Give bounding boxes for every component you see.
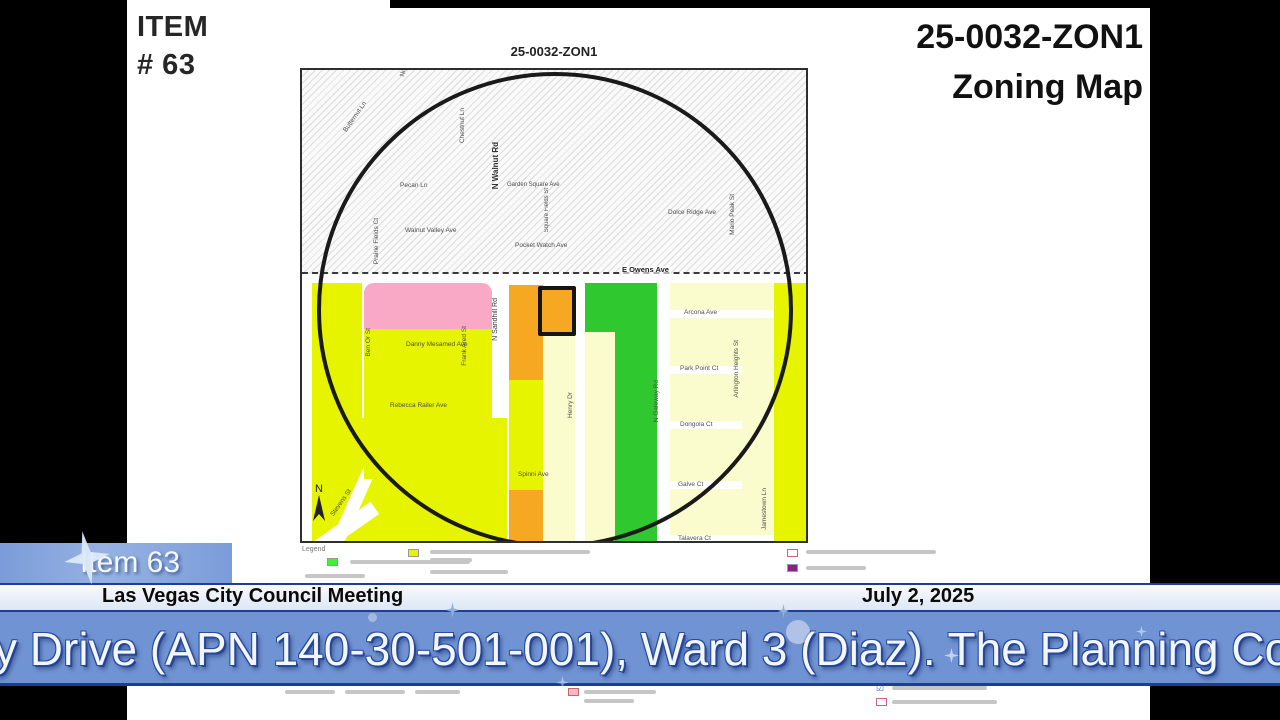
case-number: 25-0032-ZON1: [916, 12, 1143, 62]
broadcast-frame: { "header": { "item_line1": "ITEM", "ite…: [0, 0, 1280, 720]
street-label: N Walnut Rd: [492, 142, 500, 189]
street-label: Spinni Ave: [518, 472, 549, 479]
street-label: Frank Ared St: [462, 326, 469, 366]
street-label: Henry Dr: [568, 392, 575, 418]
street-label: Mario Peak St: [730, 194, 737, 235]
north-arrow-icon: [310, 495, 328, 525]
sparkle-icon: [368, 613, 377, 622]
street-label: Square Fields St: [544, 188, 550, 232]
legend-swatch-outline: [787, 549, 798, 557]
item-line1: ITEM: [137, 8, 208, 46]
map-title: 25-0032-ZON1: [300, 44, 808, 59]
legend-swatch-purple: [787, 564, 798, 572]
legend-text-blur: [584, 699, 634, 703]
legend-text-blur: [345, 690, 405, 694]
street-label: Danny Mesamed Ave: [406, 342, 468, 349]
case-map-label: Zoning Map: [916, 62, 1143, 112]
legend-text-blur: [584, 690, 656, 694]
legend-text-blur: [430, 550, 590, 554]
street-label: N Gateway Rd: [654, 380, 661, 422]
legend-text-blur: [430, 558, 472, 562]
street-label: Arcona Ave: [684, 310, 717, 317]
street-label: Prairie Fields Ct: [374, 218, 381, 264]
legend-swatch-pink: [568, 688, 579, 696]
street-label: E Owens Ave: [620, 266, 671, 274]
street-label: Garden Square Ave: [507, 182, 560, 188]
legend-swatch-green: [327, 558, 338, 566]
street-label: Rebecca Railer Ave: [390, 403, 447, 410]
legend-text-blur: [892, 700, 997, 704]
street-label: Dolce Ridge Ave: [668, 210, 716, 217]
street-label: Ben Or St: [366, 328, 373, 357]
zoning-map: Butternut Ln Nutmeg Ln Chestnut Ln N Wal…: [300, 68, 808, 543]
street-label: Talavera Ct: [678, 536, 711, 543]
legend-text-blur: [285, 690, 335, 694]
north-label: N: [310, 484, 328, 495]
legend-text-blur: [806, 566, 866, 570]
ticker-banner: y Drive (APN 140-30-501-001), Ward 3 (Di…: [0, 612, 1280, 686]
street-label: N Sandhill Rd: [492, 298, 499, 341]
meeting-date: July 2, 2025: [862, 585, 974, 608]
street-label: Walnut Valley Ave: [405, 228, 457, 235]
legend-text-blur: [305, 574, 365, 578]
street-label: Pocket Watch Ave: [515, 243, 567, 250]
north-arrow: N: [310, 484, 328, 528]
legend-text-blur: [806, 550, 936, 554]
legend-swatch-chartreuse: [408, 549, 419, 557]
street-label: Arlington Heights St: [734, 340, 741, 397]
street-label: Park Point Ct: [680, 366, 718, 373]
legend-text-blur: [430, 570, 508, 574]
legend-label: Legend: [302, 546, 325, 553]
item-badge-label: Item 63: [52, 546, 180, 580]
meeting-title: Las Vegas City Council Meeting: [102, 585, 403, 608]
street-label: Pecan Ln: [400, 183, 427, 190]
street-label: Dongola Ct: [680, 422, 713, 429]
item-line2: # 63: [137, 46, 208, 84]
legend-text-blur: [415, 690, 460, 694]
street-label: Galve Ct: [678, 482, 703, 489]
street-label: Chestnut Ln: [460, 108, 467, 143]
slide-item-number: ITEM # 63: [137, 8, 208, 84]
item-badge: Item 63: [0, 543, 232, 583]
radius-circle: [317, 72, 793, 543]
ticker-text: y Drive (APN 140-30-501-001), Ward 3 (Di…: [0, 622, 1280, 676]
legend-swatch-outline: [876, 698, 887, 706]
sparkle-icon: [1208, 646, 1215, 653]
case-title: 25-0032-ZON1 Zoning Map: [916, 12, 1143, 112]
street-label: Jamestown Ln: [762, 488, 769, 530]
top-letterbox: [390, 0, 1150, 8]
legend-text-blur: [892, 686, 987, 690]
sparkle-icon: [786, 620, 810, 644]
